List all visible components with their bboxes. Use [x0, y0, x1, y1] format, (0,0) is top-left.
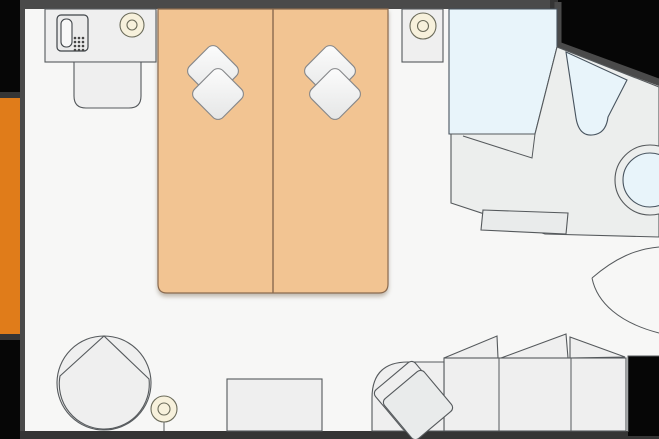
left-wall	[20, 0, 25, 439]
floor-plan-canvas	[0, 0, 659, 439]
bath-mat	[481, 210, 568, 234]
telephone-icon	[57, 15, 88, 51]
wall-segment	[0, 92, 20, 98]
bottom-wall	[20, 431, 659, 439]
outside-area-bottom-left	[0, 339, 20, 439]
nightstand	[402, 9, 443, 62]
armchair	[57, 336, 151, 430]
table-lamp-icon	[410, 13, 436, 39]
balcony-accent-strip	[0, 98, 20, 334]
twin-beds	[158, 9, 388, 293]
floor-plan-drawing	[0, 0, 659, 439]
outside-area-bottom-right	[628, 356, 659, 436]
sofa-seats	[444, 358, 626, 431]
outside-area-top-left	[0, 0, 20, 93]
desk-chair	[74, 62, 141, 108]
table-lamp-icon	[120, 13, 144, 37]
phone-handset	[61, 19, 72, 47]
top-wall	[20, 0, 558, 9]
wall-segment	[0, 334, 20, 340]
coffee-table	[227, 379, 322, 431]
